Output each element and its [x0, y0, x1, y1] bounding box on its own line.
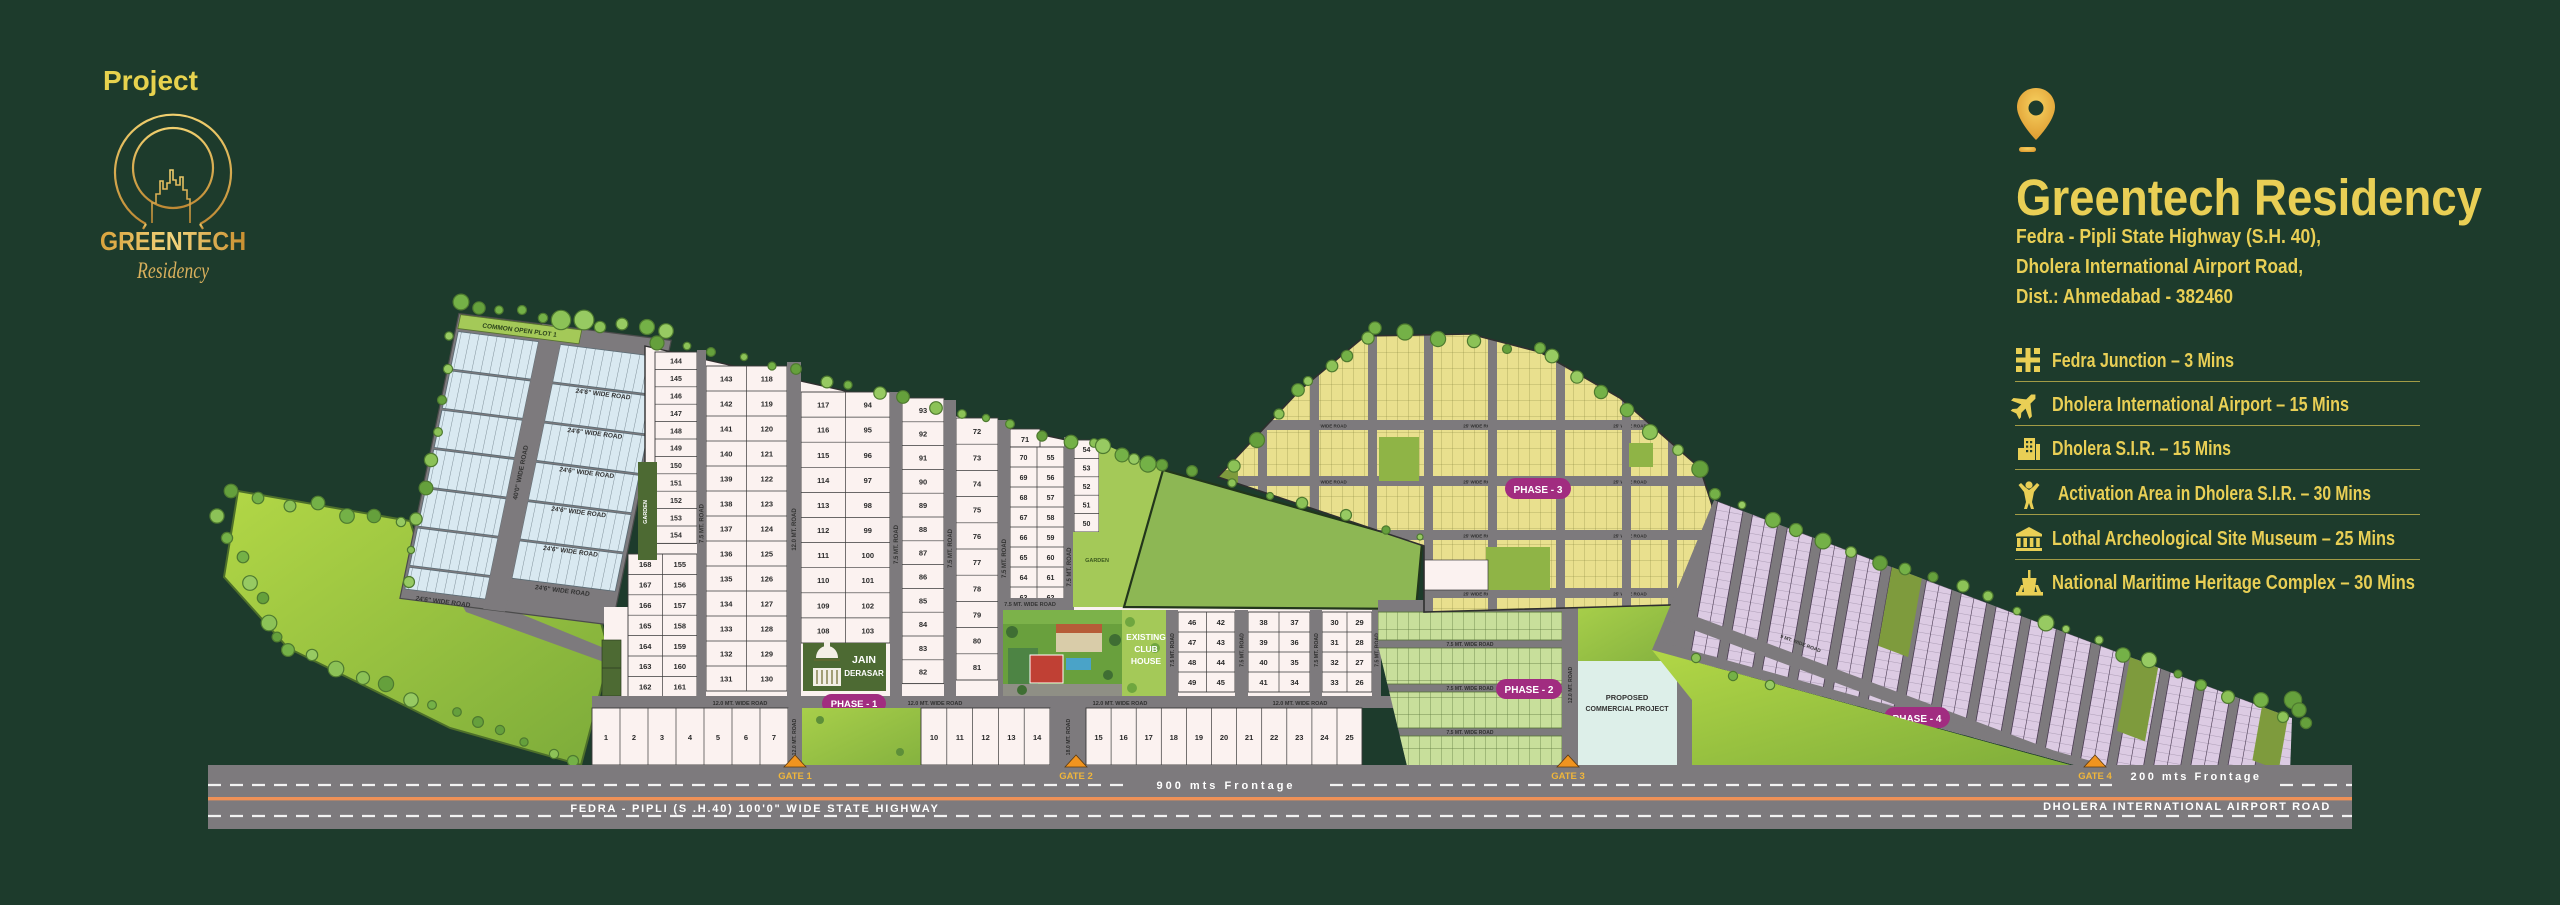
svg-text:133: 133: [720, 625, 733, 634]
svg-text:77: 77: [973, 558, 981, 567]
svg-text:113: 113: [817, 501, 829, 510]
svg-text:43: 43: [1217, 638, 1225, 647]
svg-text:124: 124: [761, 525, 774, 534]
svg-text:75: 75: [973, 506, 981, 515]
svg-text:Dholera S.I.R. – 15 Mins: Dholera S.I.R. – 15 Mins: [2052, 438, 2231, 460]
svg-text:64: 64: [1020, 575, 1028, 582]
svg-text:20: 20: [1220, 733, 1228, 742]
svg-text:3: 3: [660, 733, 664, 742]
svg-text:161: 161: [674, 683, 687, 692]
svg-text:7.5 MT. ROAD: 7.5 MT. ROAD: [1002, 538, 1008, 578]
svg-text:86: 86: [919, 573, 927, 582]
svg-text:135: 135: [720, 575, 733, 584]
svg-text:155: 155: [674, 560, 687, 569]
svg-text:34: 34: [1290, 678, 1299, 687]
svg-text:900 mts Frontage: 900 mts Frontage: [1156, 780, 1295, 792]
svg-text:165: 165: [639, 621, 652, 630]
svg-text:Dist.: Ahmedabad - 382460: Dist.: Ahmedabad - 382460: [2016, 286, 2233, 308]
svg-text:141: 141: [720, 425, 733, 434]
svg-text:56: 56: [1047, 475, 1055, 482]
svg-text:7.5 MT. ROAD: 7.5 MT. ROAD: [1067, 547, 1073, 587]
svg-text:130: 130: [761, 675, 774, 684]
svg-text:12.0 MT. WIDE ROAD: 12.0 MT. WIDE ROAD: [1093, 701, 1148, 707]
svg-text:129: 129: [761, 650, 774, 659]
svg-text:112: 112: [817, 526, 829, 535]
svg-text:50: 50: [1083, 521, 1091, 528]
svg-text:96: 96: [864, 451, 872, 460]
svg-text:National Maritime Heritage Com: National Maritime Heritage Complex – 30 …: [2052, 572, 2415, 594]
svg-text:93: 93: [919, 406, 927, 415]
svg-text:162: 162: [639, 683, 652, 692]
svg-text:83: 83: [919, 644, 927, 653]
svg-text:65: 65: [1020, 555, 1028, 562]
svg-text:138: 138: [720, 500, 733, 509]
svg-text:153: 153: [670, 515, 682, 522]
svg-text:JAIN: JAIN: [852, 654, 876, 666]
svg-text:82: 82: [919, 668, 927, 677]
svg-text:PROPOSED: PROPOSED: [1606, 693, 1649, 702]
svg-text:84: 84: [919, 620, 928, 629]
svg-text:131: 131: [720, 675, 733, 684]
svg-text:26: 26: [1355, 678, 1363, 687]
svg-text:7.5 MT. ROAD: 7.5 MT. ROAD: [948, 528, 954, 568]
svg-text:87: 87: [919, 549, 927, 558]
svg-text:148: 148: [670, 428, 682, 435]
svg-text:61: 61: [1047, 575, 1055, 582]
svg-text:7.5 MT. ROAD: 7.5 MT. ROAD: [1314, 633, 1320, 667]
svg-text:29: 29: [1355, 618, 1363, 627]
svg-text:116: 116: [817, 426, 829, 435]
svg-text:168: 168: [639, 560, 652, 569]
svg-text:69: 69: [1020, 475, 1028, 482]
svg-text:Fedra Junction – 3 Mins: Fedra Junction – 3 Mins: [2052, 350, 2234, 372]
svg-text:GREENTECH: GREENTECH: [100, 226, 246, 256]
svg-text:36: 36: [1290, 638, 1298, 647]
svg-text:7.5 MT. WIDE ROAD: 7.5 MT. WIDE ROAD: [1447, 730, 1494, 736]
svg-text:PHASE - 3: PHASE - 3: [1514, 485, 1563, 496]
svg-text:18.0 MT. ROAD: 18.0 MT. ROAD: [1066, 718, 1072, 755]
svg-text:80: 80: [973, 637, 981, 646]
svg-text:Project: Project: [103, 65, 198, 96]
svg-text:EXISTING: EXISTING: [1126, 632, 1166, 642]
svg-text:111: 111: [817, 551, 829, 560]
svg-text:99: 99: [864, 526, 872, 535]
svg-text:151: 151: [670, 481, 682, 488]
svg-text:143: 143: [720, 375, 733, 384]
svg-text:68: 68: [1020, 495, 1028, 502]
svg-text:7: 7: [772, 733, 776, 742]
svg-text:91: 91: [919, 454, 927, 463]
svg-text:101: 101: [862, 576, 875, 585]
svg-text:48: 48: [1188, 658, 1196, 667]
svg-text:GATE 1: GATE 1: [778, 771, 812, 782]
svg-text:103: 103: [862, 626, 875, 635]
svg-text:39: 39: [1259, 638, 1267, 647]
svg-text:73: 73: [973, 453, 981, 462]
svg-text:7.5 MT. ROAD: 7.5 MT. ROAD: [1170, 633, 1176, 667]
svg-text:120: 120: [761, 425, 774, 434]
svg-text:139: 139: [720, 475, 733, 484]
svg-text:31: 31: [1330, 638, 1338, 647]
svg-text:59: 59: [1047, 535, 1055, 542]
svg-text:19: 19: [1195, 733, 1203, 742]
svg-text:12.0 MT. ROAD: 12.0 MT. ROAD: [1568, 666, 1574, 703]
svg-text:164: 164: [639, 642, 652, 651]
svg-text:51: 51: [1083, 502, 1091, 509]
svg-text:7.5 MT. ROAD: 7.5 MT. ROAD: [700, 503, 706, 543]
svg-text:GATE 3: GATE 3: [1551, 771, 1585, 782]
svg-text:128: 128: [761, 625, 774, 634]
svg-text:7.5 MT. WIDE ROAD: 7.5 MT. WIDE ROAD: [1004, 602, 1056, 608]
svg-text:44: 44: [1217, 658, 1226, 667]
svg-text:145: 145: [670, 376, 682, 383]
svg-text:GATE 2: GATE 2: [1059, 771, 1093, 782]
svg-text:94: 94: [864, 401, 873, 410]
svg-text:16: 16: [1119, 733, 1127, 742]
svg-text:123: 123: [761, 500, 774, 509]
svg-text:42: 42: [1217, 618, 1225, 627]
svg-text:Lothal Archeological Site Muse: Lothal Archeological Site Museum – 25 Mi…: [2052, 528, 2395, 550]
svg-text:Activation Area in Dholera S.I: Activation Area in Dholera S.I.R. – 30 M…: [2058, 483, 2371, 505]
svg-text:12.0 MT. WIDE ROAD: 12.0 MT. WIDE ROAD: [1273, 701, 1328, 707]
svg-text:GARDEN: GARDEN: [1085, 558, 1109, 564]
svg-text:127: 127: [761, 600, 774, 609]
svg-text:144: 144: [670, 359, 682, 366]
svg-text:200 mts Frontage: 200 mts Frontage: [2130, 771, 2261, 783]
svg-text:166: 166: [639, 601, 652, 610]
svg-text:136: 136: [720, 550, 733, 559]
svg-text:13: 13: [1007, 733, 1015, 742]
svg-text:32: 32: [1330, 658, 1338, 667]
svg-text:Residency: Residency: [136, 258, 209, 283]
svg-text:PHASE - 2: PHASE - 2: [1505, 685, 1554, 696]
svg-text:40: 40: [1259, 658, 1267, 667]
svg-text:DHOLERA INTERNATIONAL AIRPORT: DHOLERA INTERNATIONAL AIRPORT ROAD: [2043, 801, 2331, 813]
svg-text:7.5 MT. WIDE ROAD: 7.5 MT. WIDE ROAD: [1447, 642, 1494, 648]
svg-text:22: 22: [1270, 733, 1278, 742]
svg-text:114: 114: [817, 476, 830, 485]
svg-text:140: 140: [720, 450, 733, 459]
svg-text:71: 71: [1021, 435, 1029, 444]
svg-text:30: 30: [1330, 618, 1338, 627]
svg-text:152: 152: [670, 498, 682, 505]
svg-text:Greentech Residency: Greentech Residency: [2016, 169, 2483, 226]
svg-text:74: 74: [973, 480, 982, 489]
svg-text:14: 14: [1033, 733, 1042, 742]
svg-text:18: 18: [1170, 733, 1178, 742]
svg-text:7.5 MT. ROAD: 7.5 MT. ROAD: [894, 524, 900, 564]
svg-text:142: 142: [720, 400, 733, 409]
svg-text:Dholera International Airport: Dholera International Airport Road,: [2016, 256, 2303, 278]
svg-text:158: 158: [674, 621, 687, 630]
svg-text:85: 85: [919, 596, 927, 605]
svg-text:100: 100: [862, 551, 875, 560]
svg-text:CLUB: CLUB: [1134, 644, 1158, 654]
svg-text:67: 67: [1020, 515, 1028, 522]
svg-text:45: 45: [1217, 678, 1225, 687]
svg-text:137: 137: [720, 525, 733, 534]
svg-text:57: 57: [1047, 495, 1055, 502]
svg-text:55: 55: [1047, 455, 1055, 462]
svg-text:88: 88: [919, 525, 927, 534]
svg-text:79: 79: [973, 611, 981, 620]
svg-text:150: 150: [670, 463, 682, 470]
svg-text:115: 115: [817, 451, 829, 460]
svg-text:159: 159: [674, 642, 687, 651]
svg-text:157: 157: [674, 601, 687, 610]
svg-text:1: 1: [604, 733, 608, 742]
svg-text:12.0 MT. ROAD: 12.0 MT. ROAD: [792, 718, 798, 755]
svg-text:70: 70: [1020, 455, 1028, 462]
svg-text:41: 41: [1259, 678, 1267, 687]
svg-text:12: 12: [981, 733, 989, 742]
svg-text:118: 118: [761, 375, 773, 384]
svg-text:33: 33: [1330, 678, 1338, 687]
svg-text:126: 126: [761, 575, 774, 584]
svg-text:24: 24: [1320, 733, 1329, 742]
svg-text:11: 11: [956, 733, 964, 742]
svg-text:GARDEN: GARDEN: [643, 500, 649, 524]
svg-text:58: 58: [1047, 515, 1055, 522]
svg-text:28: 28: [1355, 638, 1363, 647]
svg-text:163: 163: [639, 662, 652, 671]
svg-text:7.5 MT. WIDE ROAD: 7.5 MT. WIDE ROAD: [1447, 686, 1494, 692]
svg-text:17: 17: [1145, 733, 1153, 742]
svg-text:27: 27: [1355, 658, 1363, 667]
svg-text:98: 98: [864, 501, 872, 510]
svg-text:90: 90: [919, 477, 927, 486]
svg-text:54: 54: [1083, 447, 1091, 454]
svg-text:147: 147: [670, 411, 682, 418]
svg-text:97: 97: [864, 476, 872, 485]
svg-text:160: 160: [674, 662, 687, 671]
svg-text:109: 109: [817, 601, 830, 610]
svg-text:COMMERCIAL PROJECT: COMMERCIAL PROJECT: [1585, 706, 1669, 713]
svg-text:47: 47: [1188, 638, 1196, 647]
svg-text:132: 132: [720, 650, 733, 659]
svg-text:110: 110: [817, 576, 829, 585]
svg-text:21: 21: [1245, 733, 1253, 742]
svg-text:46: 46: [1188, 618, 1196, 627]
svg-text:49: 49: [1188, 678, 1196, 687]
svg-text:60: 60: [1047, 555, 1055, 562]
svg-text:15: 15: [1094, 733, 1102, 742]
svg-text:7.5 MT. ROAD: 7.5 MT. ROAD: [1240, 633, 1246, 667]
svg-text:125: 125: [761, 550, 774, 559]
svg-text:DERASAR: DERASAR: [844, 669, 884, 678]
svg-text:78: 78: [973, 584, 981, 593]
svg-text:122: 122: [761, 475, 774, 484]
svg-text:156: 156: [674, 581, 687, 590]
svg-text:12.0 MT. ROAD: 12.0 MT. ROAD: [792, 508, 798, 551]
svg-text:Fedra - Pipli State Highway (S: Fedra - Pipli State Highway (S.H. 40),: [2016, 226, 2321, 248]
svg-text:25: 25: [1345, 733, 1353, 742]
svg-text:10: 10: [930, 733, 938, 742]
svg-text:95: 95: [864, 426, 872, 435]
svg-text:89: 89: [919, 501, 927, 510]
svg-text:146: 146: [670, 394, 682, 401]
svg-text:37: 37: [1290, 618, 1298, 627]
svg-text:GATE 4: GATE 4: [2078, 771, 2112, 782]
svg-text:117: 117: [817, 401, 829, 410]
svg-text:66: 66: [1020, 535, 1028, 542]
svg-text:81: 81: [973, 663, 981, 672]
svg-text:149: 149: [670, 446, 682, 453]
svg-text:HOUSE: HOUSE: [1131, 656, 1162, 666]
svg-text:5: 5: [716, 733, 720, 742]
svg-text:2: 2: [632, 733, 636, 742]
svg-text:121: 121: [761, 450, 774, 459]
svg-text:102: 102: [862, 601, 875, 610]
svg-text:119: 119: [761, 400, 773, 409]
svg-text:154: 154: [670, 533, 682, 540]
svg-text:6: 6: [744, 733, 748, 742]
svg-text:52: 52: [1083, 484, 1091, 491]
svg-text:12.0 MT. WIDE ROAD: 12.0 MT. WIDE ROAD: [713, 701, 768, 707]
svg-text:72: 72: [973, 427, 981, 436]
svg-text:92: 92: [919, 430, 927, 439]
svg-text:12.0 MT. WIDE ROAD: 12.0 MT. WIDE ROAD: [908, 701, 963, 707]
svg-text:53: 53: [1083, 466, 1091, 473]
svg-text:167: 167: [639, 581, 652, 590]
svg-text:38: 38: [1259, 618, 1267, 627]
svg-text:Dholera International Airport: Dholera International Airport – 15 Mins: [2052, 394, 2349, 416]
svg-text:134: 134: [720, 600, 733, 609]
svg-text:FEDRA - PIPLI (S .H.40) 100': FEDRA - PIPLI (S .H.40) 100'0" WIDE STAT…: [570, 803, 939, 815]
svg-text:76: 76: [973, 532, 981, 541]
svg-text:35: 35: [1290, 658, 1298, 667]
svg-text:23: 23: [1295, 733, 1303, 742]
svg-text:108: 108: [817, 626, 830, 635]
